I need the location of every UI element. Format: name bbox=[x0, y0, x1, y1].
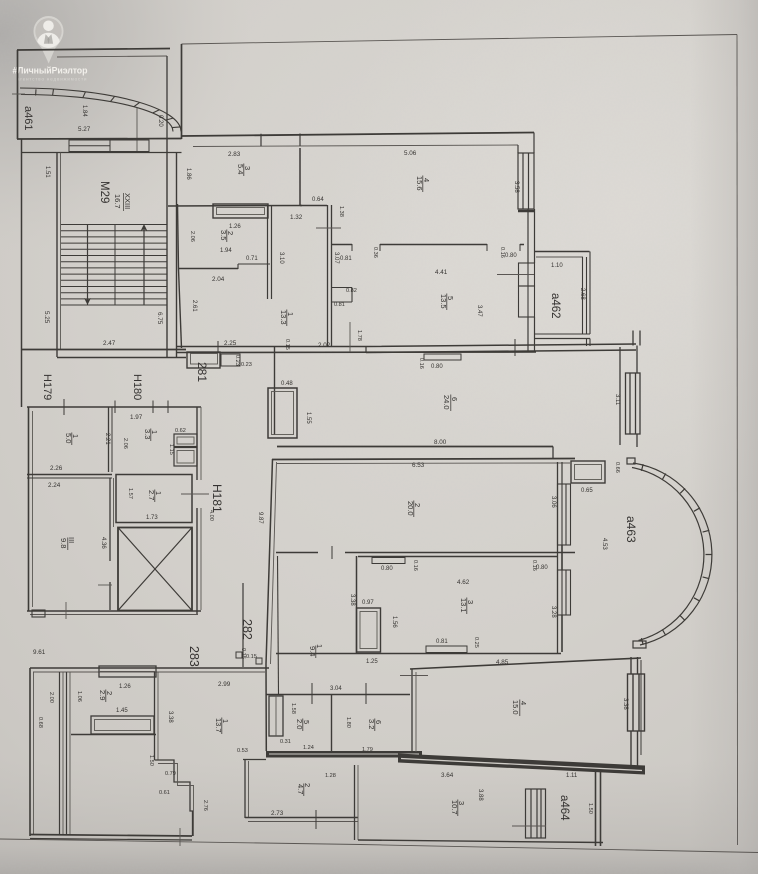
svg-text:0.20: 0.20 bbox=[157, 115, 163, 127]
svg-text:0.68: 0.68 bbox=[37, 717, 43, 728]
svg-text:9.61: 9.61 bbox=[33, 649, 46, 656]
svg-text:0.80: 0.80 bbox=[505, 253, 517, 259]
svg-text:М29: М29 bbox=[98, 181, 110, 203]
svg-text:2.83: 2.83 bbox=[228, 151, 241, 158]
svg-text:1.78: 1.78 bbox=[356, 330, 362, 341]
svg-text:2.06: 2.06 bbox=[122, 438, 128, 449]
svg-text:0.25: 0.25 bbox=[473, 637, 479, 648]
svg-text:а461: а461 bbox=[22, 106, 34, 130]
svg-text:1.26: 1.26 bbox=[119, 684, 131, 690]
svg-text:3.58: 3.58 bbox=[513, 181, 519, 193]
svg-text:8.00: 8.00 bbox=[434, 439, 447, 446]
svg-text:0.61: 0.61 bbox=[159, 790, 170, 796]
svg-text:2.25: 2.25 bbox=[224, 340, 237, 347]
svg-text:1.80: 1.80 bbox=[345, 717, 351, 728]
svg-text:2.06: 2.06 bbox=[189, 231, 195, 242]
svg-text:9.87: 9.87 bbox=[257, 512, 263, 524]
svg-text:2.26: 2.26 bbox=[50, 465, 63, 472]
svg-text:9.8: 9.8 bbox=[59, 538, 68, 548]
svg-text:а464: а464 bbox=[558, 795, 570, 821]
svg-text:0.79: 0.79 bbox=[165, 771, 176, 777]
svg-text:0.53: 0.53 bbox=[237, 748, 248, 754]
svg-text:2.04: 2.04 bbox=[212, 276, 225, 283]
svg-text:1.25: 1.25 bbox=[366, 659, 378, 665]
svg-text:283: 283 bbox=[187, 646, 201, 667]
svg-text:0.80: 0.80 bbox=[381, 566, 393, 572]
svg-text:а463: а463 bbox=[624, 516, 638, 543]
svg-text:2.68: 2.68 bbox=[579, 288, 585, 300]
svg-text:3.07: 3.07 bbox=[333, 252, 339, 264]
svg-text:1.10: 1.10 bbox=[551, 263, 563, 269]
svg-text:0.65: 0.65 bbox=[581, 488, 593, 494]
svg-text:3.64: 3.64 bbox=[441, 772, 454, 779]
svg-text:5.06: 5.06 bbox=[404, 150, 417, 157]
svg-text:3.28: 3.28 bbox=[550, 606, 556, 618]
svg-text:1.11: 1.11 bbox=[566, 773, 578, 779]
svg-text:5.27: 5.27 bbox=[78, 126, 91, 133]
svg-text:1.45: 1.45 bbox=[116, 708, 128, 714]
svg-text:1.28: 1.28 bbox=[325, 773, 336, 779]
svg-text:1.55: 1.55 bbox=[305, 412, 311, 424]
svg-text:4.53: 4.53 bbox=[601, 538, 607, 550]
svg-text:Н181: Н181 bbox=[210, 484, 224, 513]
svg-text:0.48: 0.48 bbox=[281, 381, 293, 387]
svg-text:агентство недвижимости: агентство недвижимости bbox=[17, 77, 87, 82]
svg-text:0.16: 0.16 bbox=[418, 358, 424, 369]
svg-text:24.0: 24.0 bbox=[442, 395, 451, 410]
svg-text:3.10: 3.10 bbox=[278, 252, 284, 264]
svg-text:3.47: 3.47 bbox=[476, 305, 482, 317]
svg-text:Н179: Н179 bbox=[41, 374, 53, 400]
svg-text:3.04: 3.04 bbox=[330, 686, 342, 692]
svg-text:16.7: 16.7 bbox=[113, 194, 122, 209]
svg-text:0.62: 0.62 bbox=[175, 428, 186, 434]
svg-text:6.75: 6.75 bbox=[156, 312, 163, 325]
svg-text:0.80: 0.80 bbox=[431, 364, 443, 370]
svg-text:а462: а462 bbox=[549, 293, 561, 319]
svg-text:1.73: 1.73 bbox=[146, 515, 158, 521]
svg-text:0.97: 0.97 bbox=[362, 600, 374, 606]
svg-text:#ЛичныйРиэлтор: #ЛичныйРиэлтор bbox=[13, 66, 89, 76]
svg-text:1.06: 1.06 bbox=[76, 691, 82, 702]
svg-text:1.57: 1.57 bbox=[127, 488, 133, 499]
svg-text:1.38: 1.38 bbox=[338, 206, 344, 217]
svg-text:4.41: 4.41 bbox=[435, 269, 448, 276]
svg-text:0.31: 0.31 bbox=[280, 739, 291, 745]
svg-text:Н180: Н180 bbox=[131, 374, 143, 400]
svg-text:4.00: 4.00 bbox=[208, 510, 214, 521]
svg-text:0.80: 0.80 bbox=[536, 565, 548, 571]
svg-text:0.81: 0.81 bbox=[436, 639, 448, 645]
svg-text:282: 282 bbox=[240, 619, 254, 640]
svg-text:XXIII: XXIII bbox=[123, 193, 132, 209]
svg-text:2.73: 2.73 bbox=[271, 810, 284, 817]
svg-text:3.38: 3.38 bbox=[622, 698, 628, 710]
svg-text:1.24: 1.24 bbox=[303, 745, 314, 751]
svg-text:2.47: 2.47 bbox=[103, 340, 116, 347]
svg-text:6.53: 6.53 bbox=[412, 462, 425, 469]
svg-text:2.02: 2.02 bbox=[318, 342, 331, 349]
svg-text:5.25: 5.25 bbox=[43, 311, 50, 324]
svg-text:2.24: 2.24 bbox=[48, 482, 61, 489]
svg-text:0.71: 0.71 bbox=[246, 256, 258, 262]
svg-text:1.56: 1.56 bbox=[391, 616, 397, 628]
svg-text:0.66: 0.66 bbox=[614, 462, 620, 473]
svg-text:3.11: 3.11 bbox=[614, 394, 620, 406]
svg-text:1.26: 1.26 bbox=[229, 224, 241, 230]
svg-text:1.50: 1.50 bbox=[587, 803, 593, 814]
svg-text:0.81: 0.81 bbox=[334, 302, 345, 308]
svg-text:1.84: 1.84 bbox=[81, 105, 87, 117]
svg-text:1.50: 1.50 bbox=[148, 755, 154, 766]
svg-text:1.86: 1.86 bbox=[185, 168, 191, 180]
svg-text:1.51: 1.51 bbox=[44, 166, 50, 178]
svg-text:2.21: 2.21 bbox=[104, 433, 110, 445]
svg-text:3.06: 3.06 bbox=[550, 496, 556, 508]
svg-text:0.16: 0.16 bbox=[412, 560, 418, 571]
svg-text:3.88: 3.88 bbox=[477, 789, 483, 801]
svg-text:0.64: 0.64 bbox=[312, 197, 324, 203]
svg-text:1.32: 1.32 bbox=[290, 214, 303, 221]
svg-text:2.99: 2.99 bbox=[218, 681, 231, 688]
svg-text:1.97: 1.97 bbox=[130, 414, 143, 421]
svg-text:2.61: 2.61 bbox=[191, 300, 197, 312]
svg-text:0.81: 0.81 bbox=[340, 256, 352, 262]
svg-text:15.0: 15.0 bbox=[511, 700, 520, 715]
svg-text:0.82: 0.82 bbox=[346, 288, 357, 294]
svg-text:0.23: 0.23 bbox=[241, 362, 252, 368]
svg-text:0.23: 0.23 bbox=[234, 355, 240, 366]
svg-text:0.15: 0.15 bbox=[284, 339, 290, 350]
svg-text:1.15: 1.15 bbox=[168, 444, 174, 455]
svg-text:0.36: 0.36 bbox=[372, 247, 378, 258]
svg-text:2.00: 2.00 bbox=[48, 692, 54, 703]
svg-text:281: 281 bbox=[195, 362, 209, 382]
svg-text:3.38: 3.38 bbox=[167, 711, 173, 723]
svg-text:3.38: 3.38 bbox=[349, 594, 355, 606]
svg-text:2.76: 2.76 bbox=[202, 800, 208, 811]
svg-text:0.15: 0.15 bbox=[246, 654, 257, 660]
svg-text:1.94: 1.94 bbox=[220, 248, 232, 254]
svg-text:4.36: 4.36 bbox=[100, 537, 106, 549]
svg-text:1.58: 1.58 bbox=[290, 703, 296, 714]
svg-text:4.62: 4.62 bbox=[457, 579, 470, 586]
